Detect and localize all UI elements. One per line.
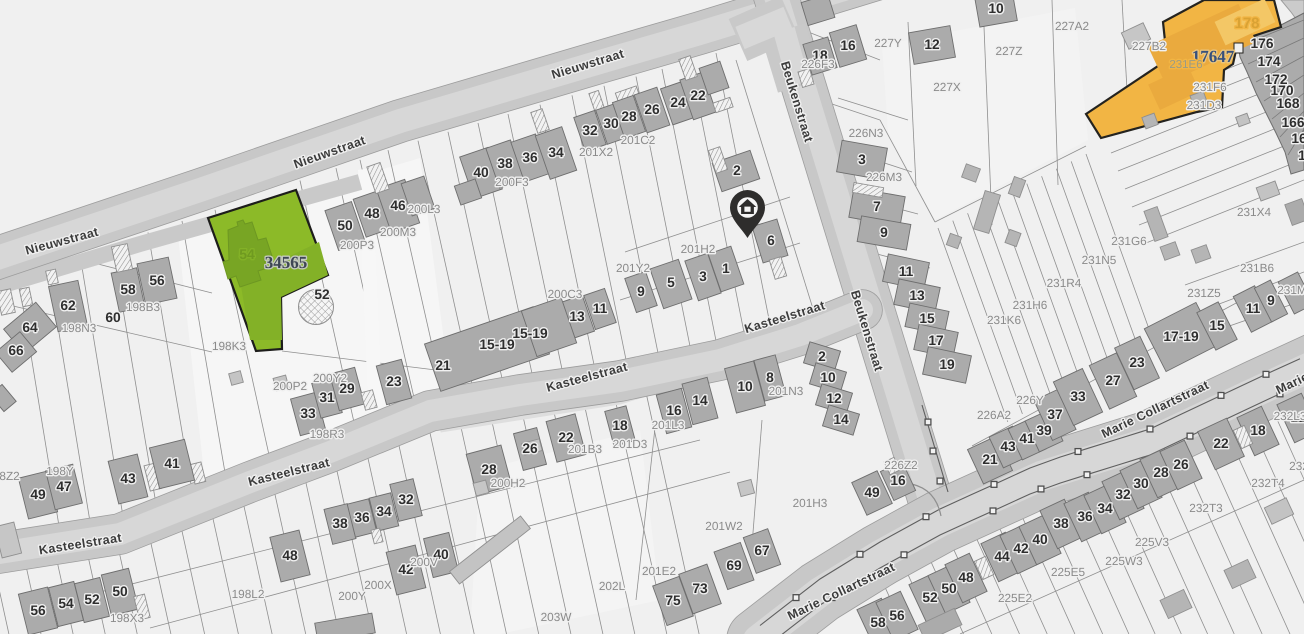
svg-text:64: 64 <box>22 320 38 335</box>
svg-text:225V3: 225V3 <box>1135 535 1170 549</box>
svg-text:10: 10 <box>988 1 1004 16</box>
svg-text:16: 16 <box>890 473 906 488</box>
svg-text:2: 2 <box>733 163 741 178</box>
svg-text:36: 36 <box>522 150 538 165</box>
svg-text:54: 54 <box>239 246 255 262</box>
svg-text:21: 21 <box>982 452 998 467</box>
svg-text:38: 38 <box>497 156 513 171</box>
svg-text:15-19: 15-19 <box>512 326 548 341</box>
svg-text:34: 34 <box>376 504 392 519</box>
svg-text:198R3: 198R3 <box>310 427 345 441</box>
svg-text:52: 52 <box>84 592 100 607</box>
svg-text:226A2: 226A2 <box>977 408 1011 422</box>
svg-text:3: 3 <box>699 269 707 284</box>
svg-text:41: 41 <box>1019 431 1035 446</box>
svg-text:37: 37 <box>1047 407 1063 422</box>
svg-text:49: 49 <box>864 485 880 500</box>
svg-text:60: 60 <box>105 310 121 325</box>
svg-text:10: 10 <box>820 370 836 385</box>
svg-text:200L3: 200L3 <box>408 202 441 216</box>
svg-text:56: 56 <box>889 608 905 623</box>
svg-text:198K3: 198K3 <box>212 339 247 353</box>
svg-text:231K6: 231K6 <box>987 313 1022 327</box>
svg-text:49: 49 <box>30 487 46 502</box>
svg-text:23: 23 <box>386 374 402 389</box>
svg-text:9: 9 <box>637 284 645 299</box>
svg-text:198B3: 198B3 <box>126 300 161 314</box>
svg-text:32: 32 <box>398 492 414 507</box>
svg-text:225E5: 225E5 <box>1051 565 1086 579</box>
svg-text:201H3: 201H3 <box>793 496 828 510</box>
svg-text:26: 26 <box>644 102 660 117</box>
svg-text:17: 17 <box>928 333 944 348</box>
svg-text:75: 75 <box>665 593 681 608</box>
svg-text:226N3: 226N3 <box>849 126 884 140</box>
svg-text:11: 11 <box>899 264 914 279</box>
svg-text:12: 12 <box>826 391 842 406</box>
svg-text:43: 43 <box>1000 439 1016 454</box>
svg-text:73: 73 <box>692 581 708 596</box>
svg-text:200Y2: 200Y2 <box>313 371 347 385</box>
svg-text:200Y: 200Y <box>338 589 366 603</box>
svg-text:227A2: 227A2 <box>1055 19 1089 33</box>
svg-text:50: 50 <box>941 581 957 596</box>
svg-text:34: 34 <box>1097 501 1113 516</box>
svg-text:67: 67 <box>754 543 770 558</box>
svg-text:39: 39 <box>1036 423 1052 438</box>
svg-text:5: 5 <box>667 275 675 290</box>
svg-text:201B3: 201B3 <box>568 442 603 456</box>
svg-text:40: 40 <box>1032 532 1048 547</box>
svg-text:201Y2: 201Y2 <box>616 261 650 275</box>
svg-text:22: 22 <box>1213 436 1229 451</box>
svg-text:41: 41 <box>164 456 180 471</box>
svg-text:227X: 227X <box>933 80 961 94</box>
svg-text:168: 168 <box>1276 96 1299 111</box>
svg-text:11: 11 <box>1246 301 1261 316</box>
svg-text:1: 1 <box>1298 148 1304 163</box>
svg-text:166: 166 <box>1281 115 1304 130</box>
svg-text:226M3: 226M3 <box>866 170 903 184</box>
svg-text:30: 30 <box>1133 476 1149 491</box>
svg-text:225E2: 225E2 <box>998 591 1032 605</box>
svg-text:232L3: 232L3 <box>1274 409 1304 423</box>
svg-text:201E2: 201E2 <box>642 564 676 578</box>
svg-text:198N3: 198N3 <box>62 321 97 335</box>
svg-text:231E6: 231E6 <box>1169 59 1202 71</box>
svg-text:6: 6 <box>767 233 775 248</box>
svg-text:33: 33 <box>1070 389 1086 404</box>
svg-text:201D3: 201D3 <box>613 437 648 451</box>
svg-text:32: 32 <box>582 123 598 138</box>
svg-text:48: 48 <box>364 206 380 221</box>
svg-text:231F6: 231F6 <box>1193 80 1227 94</box>
svg-text:231D3: 231D3 <box>1187 98 1222 112</box>
svg-text:38: 38 <box>1053 516 1069 531</box>
svg-text:231G6: 231G6 <box>1111 234 1147 248</box>
svg-text:227Y: 227Y <box>874 36 902 50</box>
svg-text:56: 56 <box>30 603 46 618</box>
svg-text:176: 176 <box>1250 36 1273 51</box>
svg-text:27: 27 <box>1105 373 1121 388</box>
svg-text:201X2: 201X2 <box>579 145 613 159</box>
svg-text:200H2: 200H2 <box>491 476 526 490</box>
svg-text:56: 56 <box>149 273 165 288</box>
svg-text:24: 24 <box>670 95 686 110</box>
svg-text:33: 33 <box>300 406 316 421</box>
svg-text:21: 21 <box>435 358 451 373</box>
svg-text:22: 22 <box>690 88 706 103</box>
svg-text:15: 15 <box>1209 318 1225 333</box>
svg-text:198X3: 198X3 <box>110 611 145 625</box>
svg-text:232T3: 232T3 <box>1189 501 1223 515</box>
svg-text:17-19: 17-19 <box>1163 329 1199 344</box>
svg-text:38: 38 <box>332 516 348 531</box>
svg-text:50: 50 <box>112 584 128 599</box>
svg-text:10: 10 <box>737 379 753 394</box>
svg-text:15: 15 <box>919 311 935 326</box>
svg-text:28: 28 <box>481 462 497 477</box>
svg-text:44: 44 <box>994 549 1010 564</box>
svg-text:231H6: 231H6 <box>1013 298 1048 312</box>
svg-text:13: 13 <box>569 309 585 324</box>
svg-text:28: 28 <box>621 109 637 124</box>
svg-text:1: 1 <box>722 261 730 276</box>
svg-text:43: 43 <box>120 471 136 486</box>
svg-text:198L2: 198L2 <box>232 587 265 601</box>
svg-text:7: 7 <box>873 199 881 214</box>
svg-text:16: 16 <box>1291 131 1304 146</box>
svg-text:200M3: 200M3 <box>380 225 417 239</box>
svg-text:26: 26 <box>1173 457 1189 472</box>
svg-text:28: 28 <box>1153 465 1169 480</box>
svg-text:231B6: 231B6 <box>1240 261 1275 275</box>
svg-text:200P3: 200P3 <box>340 238 375 252</box>
svg-text:36: 36 <box>354 510 370 525</box>
svg-text:226F3: 226F3 <box>801 57 835 71</box>
svg-text:18: 18 <box>612 418 628 433</box>
svg-text:201N3: 201N3 <box>769 384 804 398</box>
svg-text:47: 47 <box>56 479 72 494</box>
svg-text:13: 13 <box>909 288 925 303</box>
svg-text:23: 23 <box>1129 355 1145 370</box>
svg-text:15-19: 15-19 <box>479 337 515 352</box>
svg-text:231M: 231M <box>1277 283 1304 297</box>
svg-text:203W: 203W <box>541 610 573 624</box>
svg-text:200F3: 200F3 <box>495 175 529 189</box>
svg-text:200P2: 200P2 <box>273 379 307 393</box>
svg-text:226Y: 226Y <box>1016 393 1044 407</box>
svg-text:202L: 202L <box>599 579 626 593</box>
svg-text:36: 36 <box>1077 509 1093 524</box>
svg-text:46: 46 <box>390 198 406 213</box>
svg-text:225W3: 225W3 <box>1105 554 1143 568</box>
svg-text:54: 54 <box>58 596 74 611</box>
svg-text:66: 66 <box>8 343 24 358</box>
svg-text:18: 18 <box>1250 423 1266 438</box>
svg-text:2: 2 <box>818 349 826 364</box>
svg-text:30: 30 <box>603 116 619 131</box>
svg-text:16: 16 <box>666 403 682 418</box>
svg-text:32: 32 <box>1115 487 1131 502</box>
svg-text:34: 34 <box>548 145 564 160</box>
svg-text:26: 26 <box>522 441 538 456</box>
svg-text:8: 8 <box>766 370 774 385</box>
svg-text:14: 14 <box>833 412 849 427</box>
svg-text:227Z: 227Z <box>996 44 1023 58</box>
svg-text:200X: 200X <box>364 578 392 592</box>
svg-text:231N5: 231N5 <box>1082 253 1117 267</box>
svg-text:42: 42 <box>1013 541 1029 556</box>
svg-text:198Z2: 198Z2 <box>0 469 20 483</box>
svg-text:14: 14 <box>692 393 708 408</box>
svg-text:48: 48 <box>282 548 298 563</box>
svg-text:48: 48 <box>958 570 974 585</box>
svg-text:201W2: 201W2 <box>705 519 742 533</box>
svg-text:231X4: 231X4 <box>1237 205 1272 219</box>
svg-text:201C2: 201C2 <box>621 133 656 147</box>
svg-text:62: 62 <box>60 298 76 313</box>
svg-text:232T4: 232T4 <box>1251 476 1285 490</box>
svg-text:178: 178 <box>1234 15 1259 32</box>
svg-text:34565: 34565 <box>265 253 308 272</box>
svg-text:174: 174 <box>1257 54 1280 69</box>
svg-text:19: 19 <box>939 357 955 372</box>
svg-text:9: 9 <box>880 225 888 240</box>
svg-text:232: 232 <box>1289 459 1304 473</box>
svg-text:40: 40 <box>473 165 489 180</box>
svg-text:226Z2: 226Z2 <box>884 458 917 472</box>
svg-text:50: 50 <box>337 218 353 233</box>
svg-text:200C3: 200C3 <box>548 287 583 301</box>
svg-text:16: 16 <box>840 38 856 53</box>
svg-text:52: 52 <box>922 590 938 605</box>
svg-text:11: 11 <box>593 301 608 316</box>
svg-text:198Y: 198Y <box>46 464 74 478</box>
svg-text:227B2: 227B2 <box>1132 39 1166 53</box>
svg-text:58: 58 <box>870 615 886 630</box>
svg-text:201L3: 201L3 <box>652 418 685 432</box>
svg-text:52: 52 <box>314 287 330 302</box>
svg-text:12: 12 <box>924 37 940 52</box>
svg-text:201H2: 201H2 <box>681 242 716 256</box>
svg-text:31: 31 <box>319 390 335 405</box>
svg-text:58: 58 <box>120 282 136 297</box>
svg-text:200V: 200V <box>410 555 438 569</box>
svg-text:3: 3 <box>858 152 866 167</box>
svg-text:9: 9 <box>1267 293 1275 308</box>
svg-text:231R4: 231R4 <box>1047 276 1082 290</box>
svg-text:231Z5: 231Z5 <box>1187 286 1221 300</box>
svg-text:69: 69 <box>726 558 742 573</box>
